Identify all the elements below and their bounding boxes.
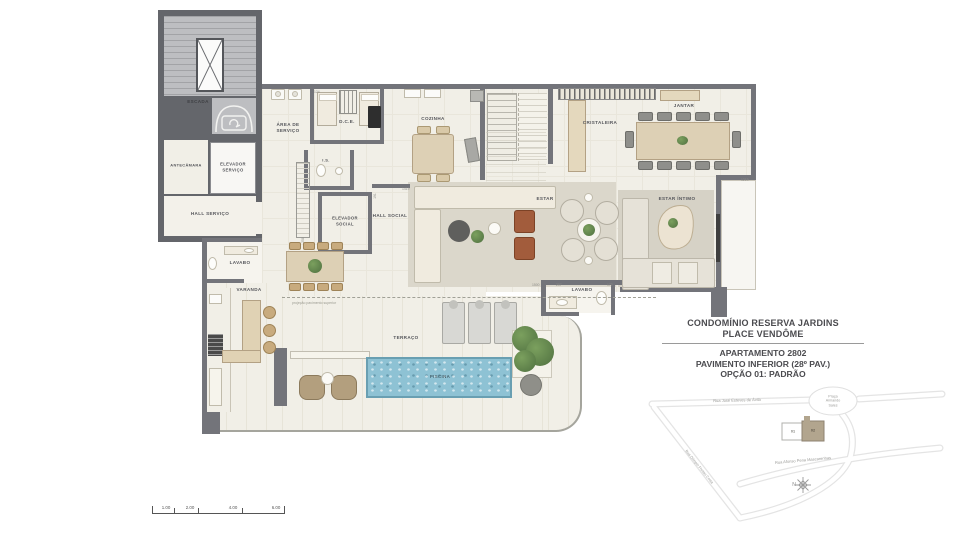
- scalebar-value: 6.00: [272, 505, 281, 510]
- building-02-notch: [804, 416, 810, 422]
- apartment-number: APARTAMENTO 2802: [648, 348, 878, 358]
- wall-lavabo2-right: [611, 285, 615, 315]
- side-balcony-floor: [721, 180, 756, 290]
- terrace-plant: [514, 350, 536, 372]
- is-toilet: [316, 164, 326, 177]
- room-label-hall-servico: HALL SERVIÇO: [191, 211, 229, 217]
- fire-hose-icon: [212, 98, 256, 134]
- leather-pouf: [514, 237, 535, 260]
- scalebar-value: 1.00: [162, 505, 171, 510]
- round-fire-pit: [520, 374, 542, 396]
- wall-bottomleft-corner: [202, 410, 220, 434]
- kitchen-chair: [436, 174, 450, 182]
- wall-is-bottom: [304, 186, 354, 190]
- lavabo2-sink: [556, 299, 568, 306]
- room-label-jantar: JANTAR: [674, 103, 694, 109]
- room-label-cozinha: COZINHA: [421, 116, 444, 122]
- living-coffee-table: [448, 220, 470, 242]
- building-01-label: 01: [791, 430, 795, 435]
- room-label-piscina: PISCINA: [430, 374, 450, 380]
- terrace-floor-corner: [548, 316, 582, 432]
- floor-plan-sheet: ESCADA ANTECÂMARA ELEVADOR SERVIÇO HALL …: [0, 0, 960, 540]
- wall-is-right: [350, 150, 354, 190]
- scalebar-tick: [284, 506, 285, 514]
- wall-lavabo2-bottom: [541, 312, 579, 316]
- scalebar-tick: [174, 508, 175, 514]
- room-label-hall-social: HALL SOCIAL: [373, 213, 408, 219]
- dim-text: 207: [556, 283, 562, 287]
- lounger-pillow: [501, 300, 510, 309]
- wall-elev-social-top: [318, 192, 372, 196]
- cristaleira-cabinet: [568, 100, 586, 172]
- scalebar-tick: [152, 506, 153, 514]
- varanda-chair: [303, 242, 315, 250]
- dim-text: 172: [607, 283, 613, 287]
- small-side-table: [584, 256, 593, 265]
- kitchen-chair: [436, 126, 450, 134]
- bar-stool: [263, 341, 276, 354]
- dce-wardrobe: [339, 90, 357, 114]
- cristaleira-top-cabinet: [558, 88, 656, 100]
- wall-stair-right: [548, 88, 553, 164]
- scalebar-value: 4.00: [229, 505, 238, 510]
- scalebar-tick: [198, 508, 199, 514]
- varanda-chair: [289, 242, 301, 250]
- wall-dce-bottom: [310, 140, 384, 144]
- varanda-chair: [289, 283, 301, 291]
- dining-chair: [638, 161, 653, 170]
- terrace-bench: [290, 351, 370, 359]
- varanda-chair: [317, 283, 329, 291]
- bar-stool: [263, 306, 276, 319]
- condo-name-line2: PLACE VENDÔME: [648, 329, 878, 340]
- dining-chair: [732, 131, 741, 148]
- dce-bed-1-pillow: [319, 94, 337, 101]
- compass-star-icon: [795, 477, 811, 493]
- scalebar-value: 2.00: [186, 505, 195, 510]
- praca-label: Praça Armando Sales: [826, 394, 841, 407]
- scalebar-line: [152, 513, 284, 514]
- varanda-bar-counter-h: [222, 350, 261, 363]
- small-side-table: [584, 193, 593, 202]
- swivel-armchair: [595, 201, 619, 225]
- room-label-estar-intimo: ESTAR ÍNTIMO: [659, 196, 696, 202]
- dining-chair: [638, 112, 653, 121]
- room-label-escada: ESCADA: [187, 99, 209, 105]
- wall-top: [262, 84, 756, 89]
- wall-step-right: [716, 175, 756, 180]
- room-label-estar: ESTAR: [537, 196, 554, 202]
- varanda-table-plant: [308, 259, 322, 273]
- room-label-elevador-servico: ELEVADOR SERVIÇO: [220, 161, 246, 172]
- living-plant: [471, 230, 484, 243]
- lavabo1-sink: [244, 248, 254, 253]
- swivel-armchair: [594, 237, 618, 261]
- room-label-varanda: VARANDA: [236, 287, 261, 293]
- dim-text: 191: [373, 193, 377, 199]
- lavabo1-toilet: [208, 257, 217, 270]
- varanda-chair: [317, 242, 329, 250]
- room-label-is: I.S.: [322, 157, 329, 162]
- sofa-cushion: [678, 262, 698, 284]
- varanda-chair: [331, 242, 343, 250]
- wall-dce-left: [310, 88, 314, 144]
- floor-level: PAVIMENTO INFERIOR (28º PAV.): [648, 359, 878, 369]
- wall-corner-chunk: [711, 287, 727, 317]
- living-side-table: [488, 222, 501, 235]
- wall-lavabo2-left: [541, 280, 546, 316]
- tv-panel: [716, 214, 720, 262]
- dining-chair: [695, 112, 710, 121]
- varanda-chair: [331, 283, 343, 291]
- hose-room: [212, 98, 256, 134]
- lounger-pillow: [449, 300, 458, 309]
- room-label-antecamara: ANTECÂMARA: [170, 162, 201, 167]
- scalebar-tick: [242, 508, 243, 514]
- swivel-armchair: [561, 238, 585, 262]
- building-02-label: 02: [811, 429, 815, 434]
- dce-bed-2-pillow: [361, 94, 379, 101]
- dim-text: 258: [301, 237, 305, 243]
- leather-pouf: [514, 210, 535, 233]
- room-label-lavabo-servico: LAVABO: [230, 260, 251, 266]
- center-table-plant: [583, 224, 595, 236]
- kitchen-counter: [470, 90, 484, 102]
- wall-elev-social-right: [368, 192, 372, 254]
- wall-right-jantar: [751, 84, 756, 180]
- varanda-sink: [209, 294, 222, 304]
- dining-chair: [657, 161, 672, 170]
- dining-chair: [714, 112, 729, 121]
- dim-text: 1500: [532, 283, 540, 287]
- kitchen-table: [412, 134, 454, 174]
- wall-varanda-terrace: [274, 348, 287, 406]
- room-label-terraco: TERRAÇO: [393, 335, 418, 341]
- wall-lavabo1-bottom: [202, 279, 244, 283]
- dim-text: 1219: [741, 178, 749, 182]
- kitchen-chair: [417, 174, 431, 182]
- organic-table-plant: [668, 218, 678, 228]
- title-block: CONDOMÍNIO RESERVA JARDINS PLACE VENDÔME…: [648, 318, 878, 380]
- terrace-pouf: [331, 375, 357, 400]
- varanda-chair: [303, 283, 315, 291]
- dryer-machine-door: [292, 91, 298, 97]
- dining-chair: [676, 112, 691, 121]
- dim-text: 124: [314, 90, 320, 94]
- room-label-dce: D.C.E.: [339, 119, 355, 125]
- kitchen-chair: [417, 126, 431, 134]
- varanda-grill: [208, 334, 223, 356]
- duct-shaft: [296, 162, 310, 238]
- bar-stool: [263, 324, 276, 337]
- living-sofa-left: [414, 209, 441, 283]
- dining-chair: [657, 112, 672, 121]
- room-label-cristaleira: CRISTALEIRA: [583, 120, 617, 126]
- dining-chair: [625, 131, 634, 148]
- sideboard-shelf: [660, 90, 700, 101]
- kitchen-sink-1: [404, 89, 421, 98]
- living-sofa-top: [414, 186, 556, 209]
- dining-centerpiece-plant: [677, 136, 688, 145]
- lounger-pillow: [475, 300, 484, 309]
- title-divider: [662, 343, 864, 344]
- dining-chair: [695, 161, 710, 170]
- cooktop: [368, 106, 381, 128]
- condo-name-line1: CONDOMÍNIO RESERVA JARDINS: [648, 318, 878, 329]
- projection-label: projeção pavimento superior: [292, 301, 336, 305]
- room-label-area-servico: ÁREA DE SERVIÇO: [276, 122, 299, 134]
- laundry-machine-door: [275, 91, 281, 97]
- dining-chair: [676, 161, 691, 170]
- stair-shaft: [196, 38, 224, 92]
- varanda-cabinet: [209, 368, 222, 406]
- shaft-x-icon: [198, 40, 222, 90]
- lavabo2-toilet: [596, 291, 607, 305]
- room-label-elevador-social: ELEVADOR SOCIAL: [332, 215, 358, 226]
- sofa-cushion: [652, 262, 672, 284]
- swivel-armchair: [560, 199, 584, 223]
- upper-floor-projection-line: [282, 297, 656, 298]
- kitchen-sink-2: [424, 89, 441, 98]
- dim-text: 1419: [402, 187, 410, 191]
- is-sink: [335, 167, 343, 175]
- room-label-lavabo-social: LAVABO: [572, 287, 593, 293]
- wall-lavabo1-top: [202, 238, 262, 242]
- dining-chair: [714, 161, 729, 170]
- compass-n-label: N: [792, 482, 796, 488]
- terrace-side-table: [321, 372, 334, 385]
